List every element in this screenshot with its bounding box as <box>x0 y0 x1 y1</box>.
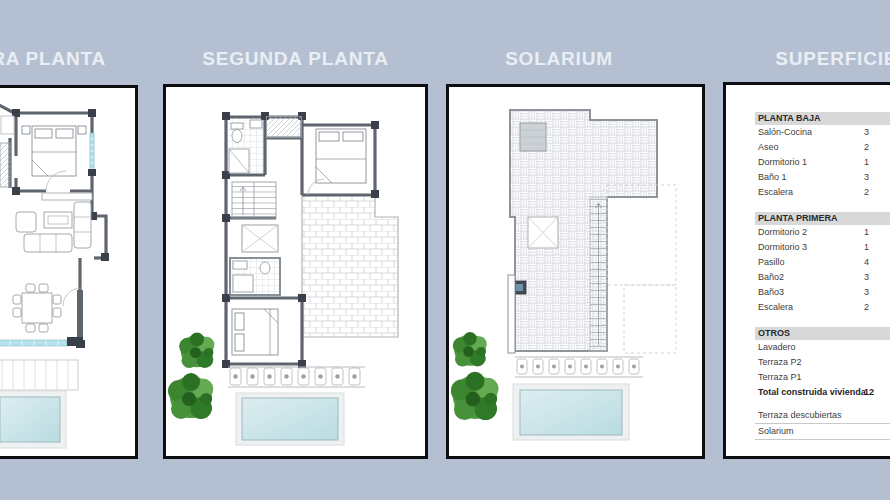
table-row-label: Aseo <box>758 140 779 155</box>
table-row-value: 12 <box>864 385 874 400</box>
parapet-wall <box>508 275 515 353</box>
table-row: Total construida vivienda12 <box>755 385 890 400</box>
table-row-value: 3 <box>864 285 869 300</box>
table-row-label: Escalera <box>758 185 793 200</box>
terrace-railing <box>228 367 365 387</box>
table-row: Dormitorio 11 <box>755 155 890 170</box>
panel-title-segunda-planta: SEGUNDA PLANTA <box>163 46 428 72</box>
table-section-header: PLANTA PRIMERA <box>755 212 890 225</box>
table-row-value: 1 <box>864 225 869 240</box>
table-row: Baño33 <box>755 285 890 300</box>
bed-2 <box>232 309 278 355</box>
table-row-label: Baño2 <box>758 270 784 285</box>
floor-below-outline <box>607 185 676 353</box>
table-row: Salón-Cocina3 <box>755 125 890 140</box>
table-footer: Terraza descubiertasSolarium <box>755 408 890 440</box>
pool <box>513 384 629 440</box>
table-row-label: Dormitorio 1 <box>758 155 807 170</box>
table-row: Escalera2 <box>755 185 890 200</box>
table-row-label: Terraza P2 <box>758 355 802 370</box>
wall-segment <box>77 290 83 342</box>
table-row: Terraza P2 <box>755 355 890 370</box>
wardrobe <box>267 117 302 138</box>
bed <box>316 129 366 183</box>
table-row-label: Terraza descubiertas <box>758 408 842 423</box>
shaft <box>528 217 558 248</box>
stairs <box>232 182 276 218</box>
table-row: Baño23 <box>755 270 890 285</box>
table-row-label: Baño 1 <box>758 170 787 185</box>
bathroom-2 <box>230 258 280 295</box>
floor-plan-primera <box>0 88 135 456</box>
table-section-header: OTROS <box>755 327 890 340</box>
panel-title-superficies: SUPERFICIES <box>723 46 890 72</box>
table-row-label: Total construida vivienda <box>758 385 866 400</box>
table-row: Dormitorio 31 <box>755 240 890 255</box>
terrace-deck <box>0 360 78 390</box>
panel-solarium <box>446 84 705 459</box>
shelf <box>1 116 14 134</box>
floor-plan-solarium <box>449 87 702 456</box>
table-row: Solarium <box>755 424 890 440</box>
panel-title-primera-planta: PRIMERA PLANTA <box>0 46 138 72</box>
living-room-furniture <box>16 202 91 252</box>
bed <box>22 126 86 176</box>
tree-icon <box>451 372 499 420</box>
skylight <box>520 123 546 151</box>
table-row-label: Baño3 <box>758 285 784 300</box>
table-row-value: 4 <box>864 255 869 270</box>
table-row: Baño 13 <box>755 170 890 185</box>
panel-superficies: PLANTA BAJASalón-Cocina3Aseo2Dormitorio … <box>723 82 890 459</box>
table-row-label: Solarium <box>758 424 794 439</box>
table-section-header: PLANTA BAJA <box>755 112 890 125</box>
table-row: Aseo2 <box>755 140 890 155</box>
table-row: Lavadero <box>755 340 890 355</box>
table-row-label: Dormitorio 3 <box>758 240 807 255</box>
tree-icon <box>168 373 213 419</box>
terrace-tiled <box>302 195 398 337</box>
table-row: Pasillo4 <box>755 255 890 270</box>
brochure-page: PRIMERA PLANTA SEGUNDA PLANTA SOLARIUM S… <box>0 0 890 500</box>
panel-primera-planta <box>0 85 138 459</box>
table-row-label: Lavadero <box>758 340 796 355</box>
table-row: Terraza descubiertas <box>755 408 890 424</box>
table-row-label: Pasillo <box>758 255 785 270</box>
window-glazing <box>90 133 94 173</box>
stairs <box>590 197 607 351</box>
tree-icon <box>453 332 487 367</box>
table-row-value: 1 <box>864 155 869 170</box>
table-row-value: 2 <box>864 185 869 200</box>
table-row-value: 2 <box>864 140 869 155</box>
table-row-value: 2 <box>864 300 869 315</box>
pool <box>0 391 66 448</box>
dining-table <box>13 284 61 332</box>
closet <box>0 143 10 187</box>
terrace-railing <box>515 357 643 377</box>
window-band <box>0 337 83 346</box>
tree-icon <box>179 332 214 368</box>
table-row-value: 3 <box>864 170 869 185</box>
pool <box>236 393 344 445</box>
table-row-label: Escalera <box>758 300 793 315</box>
table-row: Dormitorio 21 <box>755 225 890 240</box>
table-row-label: Terraza P1 <box>758 370 802 385</box>
floor-plan-segunda <box>166 87 425 456</box>
panel-title-solarium: SOLARIUM <box>446 46 672 72</box>
closet-shaft <box>242 225 278 252</box>
sideboard <box>42 193 92 200</box>
panel-segunda-planta <box>163 84 428 459</box>
table-row-label: Salón-Cocina <box>758 125 812 140</box>
surfaces-table: PLANTA BAJASalón-Cocina3Aseo2Dormitorio … <box>755 112 890 440</box>
table-row-value: 3 <box>864 270 869 285</box>
table-row-label: Dormitorio 2 <box>758 225 807 240</box>
table-row: Escalera2 <box>755 300 890 315</box>
table-row: Terraza P1 <box>755 370 890 385</box>
table-row-value: 1 <box>864 240 869 255</box>
table-row-value: 3 <box>864 125 869 140</box>
